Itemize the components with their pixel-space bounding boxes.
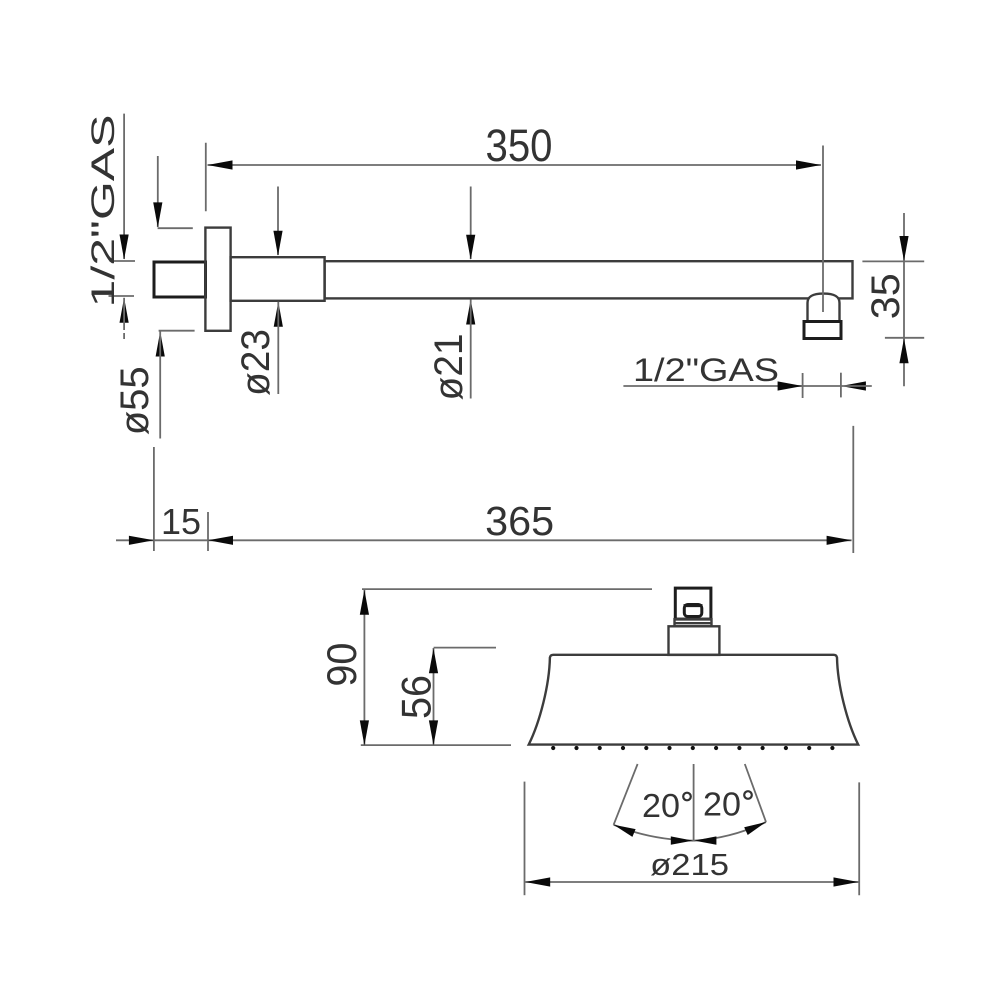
svg-text:20: 20 bbox=[703, 786, 741, 823]
svg-text:35: 35 bbox=[864, 273, 908, 319]
svg-text:365: 365 bbox=[485, 498, 554, 544]
svg-text:15: 15 bbox=[161, 501, 201, 542]
svg-text:20: 20 bbox=[642, 787, 680, 824]
svg-text:ø21: ø21 bbox=[427, 334, 471, 401]
svg-text:ø55: ø55 bbox=[113, 366, 157, 435]
svg-text:ø215: ø215 bbox=[650, 847, 729, 882]
svg-text:90: 90 bbox=[318, 643, 365, 687]
svg-text:1/2"GAS: 1/2"GAS bbox=[633, 352, 779, 388]
svg-text:1/2"GAS: 1/2"GAS bbox=[85, 115, 121, 308]
svg-text:350: 350 bbox=[486, 120, 553, 171]
svg-text:ø23: ø23 bbox=[234, 329, 278, 396]
svg-text:56: 56 bbox=[393, 675, 440, 719]
